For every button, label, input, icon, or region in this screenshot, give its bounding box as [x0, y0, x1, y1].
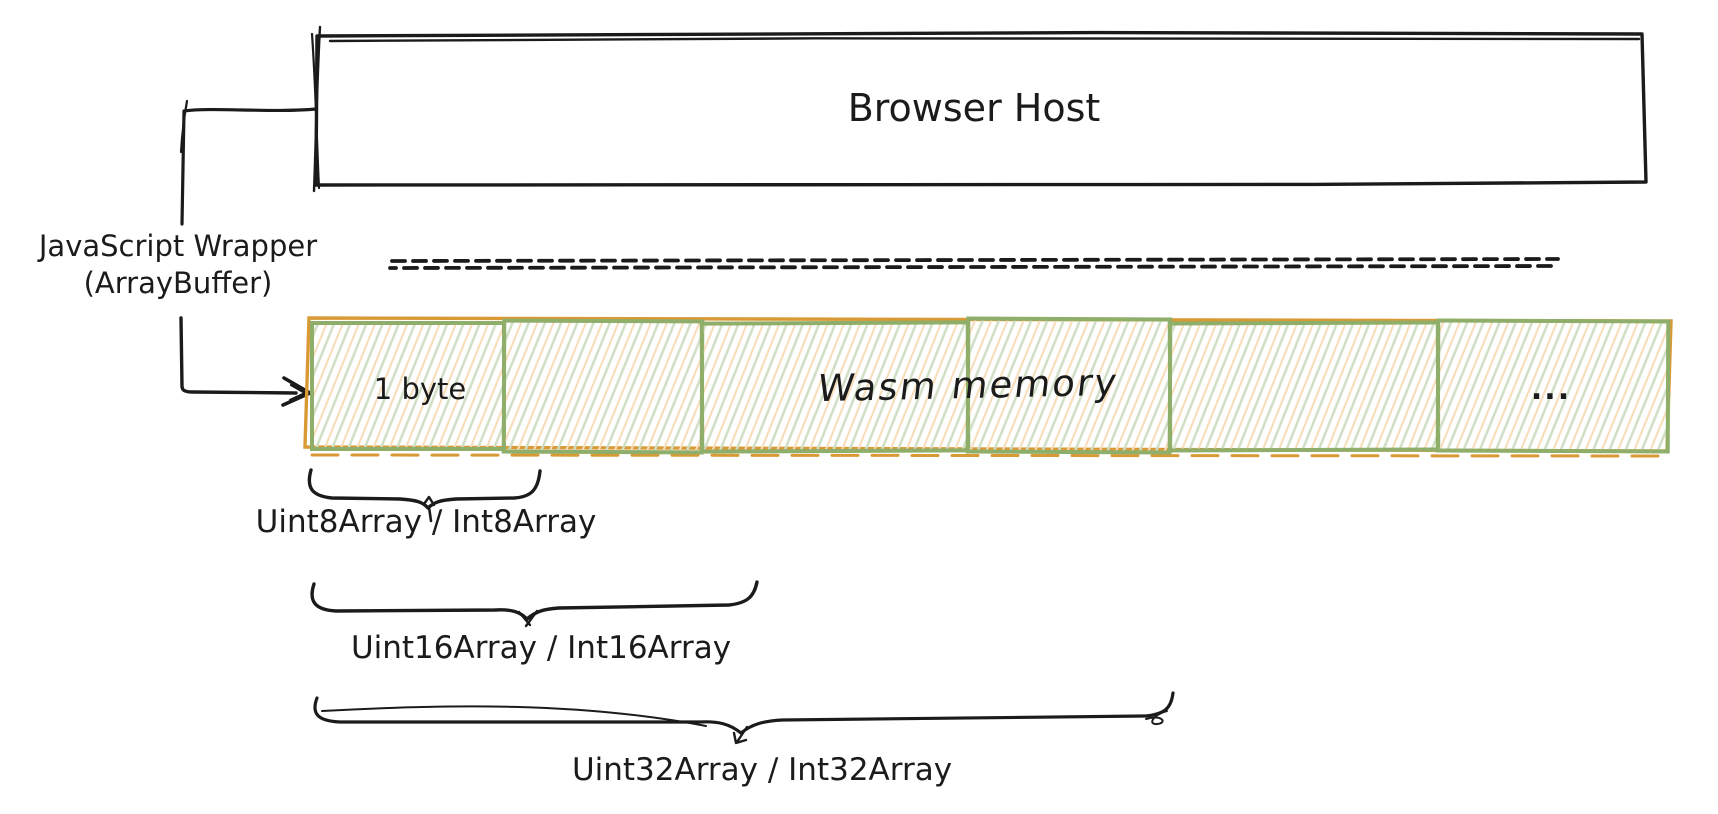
uint8-int8-label: Uint8Array / Int8Array: [256, 504, 597, 540]
diagram-canvas: Browser Host JavaScript Wrapper (ArrayBu…: [0, 0, 1718, 814]
cell-1byte-label: 1 byte: [374, 372, 466, 406]
wasm-memory-label: Wasm memory: [815, 361, 1121, 410]
underbrace-uint32: [315, 693, 1173, 743]
strip-outline-bottom: [312, 455, 1664, 456]
wrapper-label-line2: (ArrayBuffer): [39, 265, 317, 302]
underbrace-uint16: [312, 582, 757, 626]
ellipsis-label: ...: [1531, 372, 1571, 407]
uint32-int32-label: Uint32Array / Int32Array: [572, 752, 952, 788]
wrapper-label: JavaScript Wrapper (ArrayBuffer): [39, 228, 317, 302]
wrapper-label-line1: JavaScript Wrapper: [39, 228, 317, 265]
memory-cell-2: [504, 321, 703, 453]
host-box-title: Browser Host: [848, 86, 1101, 130]
memory-cell-5: [1170, 323, 1438, 451]
uint16-int16-label: Uint16Array / Int16Array: [351, 630, 731, 666]
separator-dashed-line: [390, 259, 1558, 268]
